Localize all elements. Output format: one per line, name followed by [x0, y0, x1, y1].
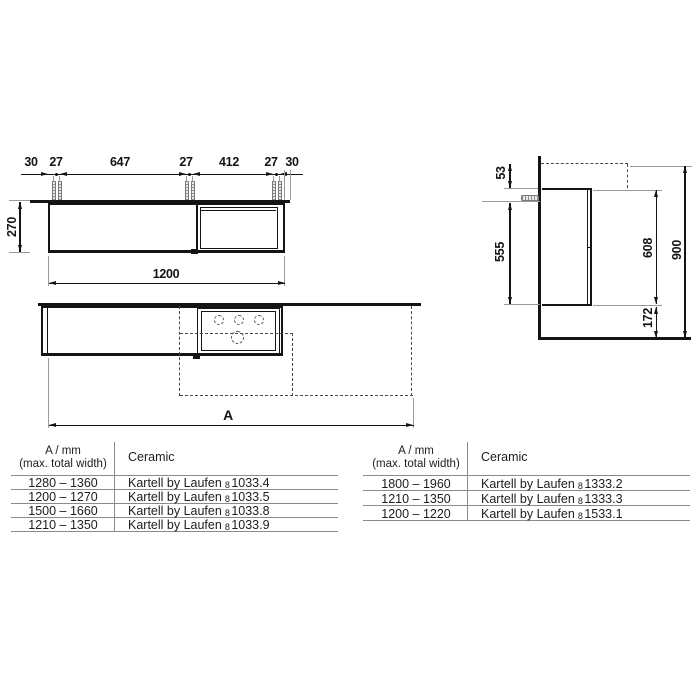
cabinet-divider: [196, 205, 198, 250]
arrowhead: [41, 172, 48, 176]
table-cell-range: 1800 – 1960: [381, 478, 451, 491]
column-header: (max. total width): [372, 458, 460, 470]
tap-hole-icon: [214, 315, 224, 325]
dimension-line: [49, 425, 414, 426]
arrowhead: [60, 172, 67, 176]
dim-label: 608: [642, 237, 654, 259]
arrowhead: [508, 181, 512, 188]
column-header: A / mm: [398, 445, 434, 457]
arrowhead: [654, 297, 658, 304]
dim-label: 647: [109, 156, 131, 169]
cabinet-side: [542, 188, 593, 306]
extension-line: [284, 170, 285, 200]
washbasin-hidden-edge: [180, 395, 413, 396]
column-divider: [467, 442, 468, 520]
dim-label: 270: [6, 216, 18, 238]
table-cell-range: 1200 – 1220: [381, 508, 451, 521]
technical-drawing-page: 30 27 647 27 412 27 30: [0, 0, 700, 700]
extension-line: [593, 190, 662, 191]
basin-unit-inner-line: [201, 210, 276, 211]
table-cell-range: 1210 – 1350: [381, 493, 451, 506]
dim-label: 27: [48, 156, 63, 169]
arrowhead: [18, 245, 22, 252]
dimension-line: [509, 203, 510, 304]
table-cell-product: Kartell by Laufen81033.9: [128, 519, 270, 534]
table-cell-range: 1500 – 1660: [28, 505, 98, 518]
extension-line: [9, 252, 30, 253]
hanger-bolt-icon: [58, 181, 62, 200]
arrowhead: [278, 281, 285, 285]
table-cell-product: Kartell by Laufen81533.1: [481, 508, 623, 523]
hanger-bolt-icon: [191, 181, 195, 200]
door-seam: [588, 247, 593, 248]
hanger-bolt-icon: [52, 181, 56, 200]
tap-hole-icon: [234, 315, 244, 325]
table-cell-product: Kartell by Laufen81333.3: [481, 493, 623, 508]
arrowhead: [18, 202, 22, 209]
dim-tick: [275, 173, 278, 176]
hanger-bolt-icon: [272, 181, 276, 200]
arrowhead: [49, 423, 56, 427]
extension-line: [48, 358, 49, 428]
arrowhead: [508, 297, 512, 304]
arrowhead: [654, 331, 658, 338]
extension-line: [290, 170, 291, 200]
floor-line: [538, 337, 691, 340]
hanger-bolt-icon: [278, 181, 282, 200]
column-header: Ceramic: [128, 451, 175, 464]
washbasin-hidden-edge: [179, 306, 180, 396]
dim-label: 30: [284, 156, 299, 169]
extension-line: [482, 201, 540, 202]
basin-unit-front: [200, 207, 278, 250]
arrowhead: [266, 172, 273, 176]
cabinet-foot-tick: [191, 249, 198, 254]
washbasin-hidden-edge: [180, 333, 293, 334]
dim-label: 27: [263, 156, 278, 169]
dim-tick: [188, 173, 191, 176]
arrowhead: [193, 172, 200, 176]
column-header: Ceramic: [481, 451, 528, 464]
washbasin-hidden-edge: [411, 306, 412, 396]
cabinet-side-panel-line: [47, 307, 48, 353]
dim-label: 1200: [152, 268, 181, 281]
table-cell-product: Kartell by Laufen81333.2: [481, 478, 623, 493]
table-cell-range: 1210 – 1350: [28, 519, 98, 532]
dim-label: 172: [642, 307, 654, 329]
column-header: A / mm: [45, 445, 81, 457]
cabinet-foot-tick: [193, 354, 200, 359]
dimension-line: [684, 166, 685, 338]
table-cell-range: 1280 – 1360: [28, 477, 98, 490]
dim-label: 53: [495, 165, 507, 180]
arrowhead: [406, 423, 413, 427]
arrowhead: [654, 190, 658, 197]
countertop-hidden-edge: [541, 163, 628, 164]
dimension-line: [49, 283, 285, 284]
arrowhead: [49, 281, 56, 285]
dim-label: 900: [671, 239, 683, 261]
dim-label: 555: [494, 241, 506, 263]
arrowhead: [683, 166, 687, 173]
extension-line: [504, 188, 538, 189]
arrowhead: [683, 331, 687, 338]
column-header: (max. total width): [19, 458, 107, 470]
arrowhead: [508, 203, 512, 210]
arrowhead: [179, 172, 186, 176]
table-cell-range: 1200 – 1270: [28, 491, 98, 504]
dim-label: 27: [178, 156, 193, 169]
washbasin-hidden-edge: [292, 333, 293, 396]
dim-tick: [55, 173, 58, 176]
dimension-line: [656, 190, 657, 304]
dim-label: 412: [218, 156, 240, 169]
dim-label: 30: [23, 156, 38, 169]
dim-label: A: [222, 409, 234, 422]
arrowhead: [654, 307, 658, 314]
arrowhead: [508, 164, 512, 171]
hanger-bolt-icon: [185, 181, 189, 200]
tap-hole-icon: [254, 315, 264, 325]
extension-line: [593, 305, 662, 306]
extension-line: [504, 304, 540, 305]
extension-line: [9, 200, 30, 201]
countertop-hidden-edge: [627, 164, 628, 188]
